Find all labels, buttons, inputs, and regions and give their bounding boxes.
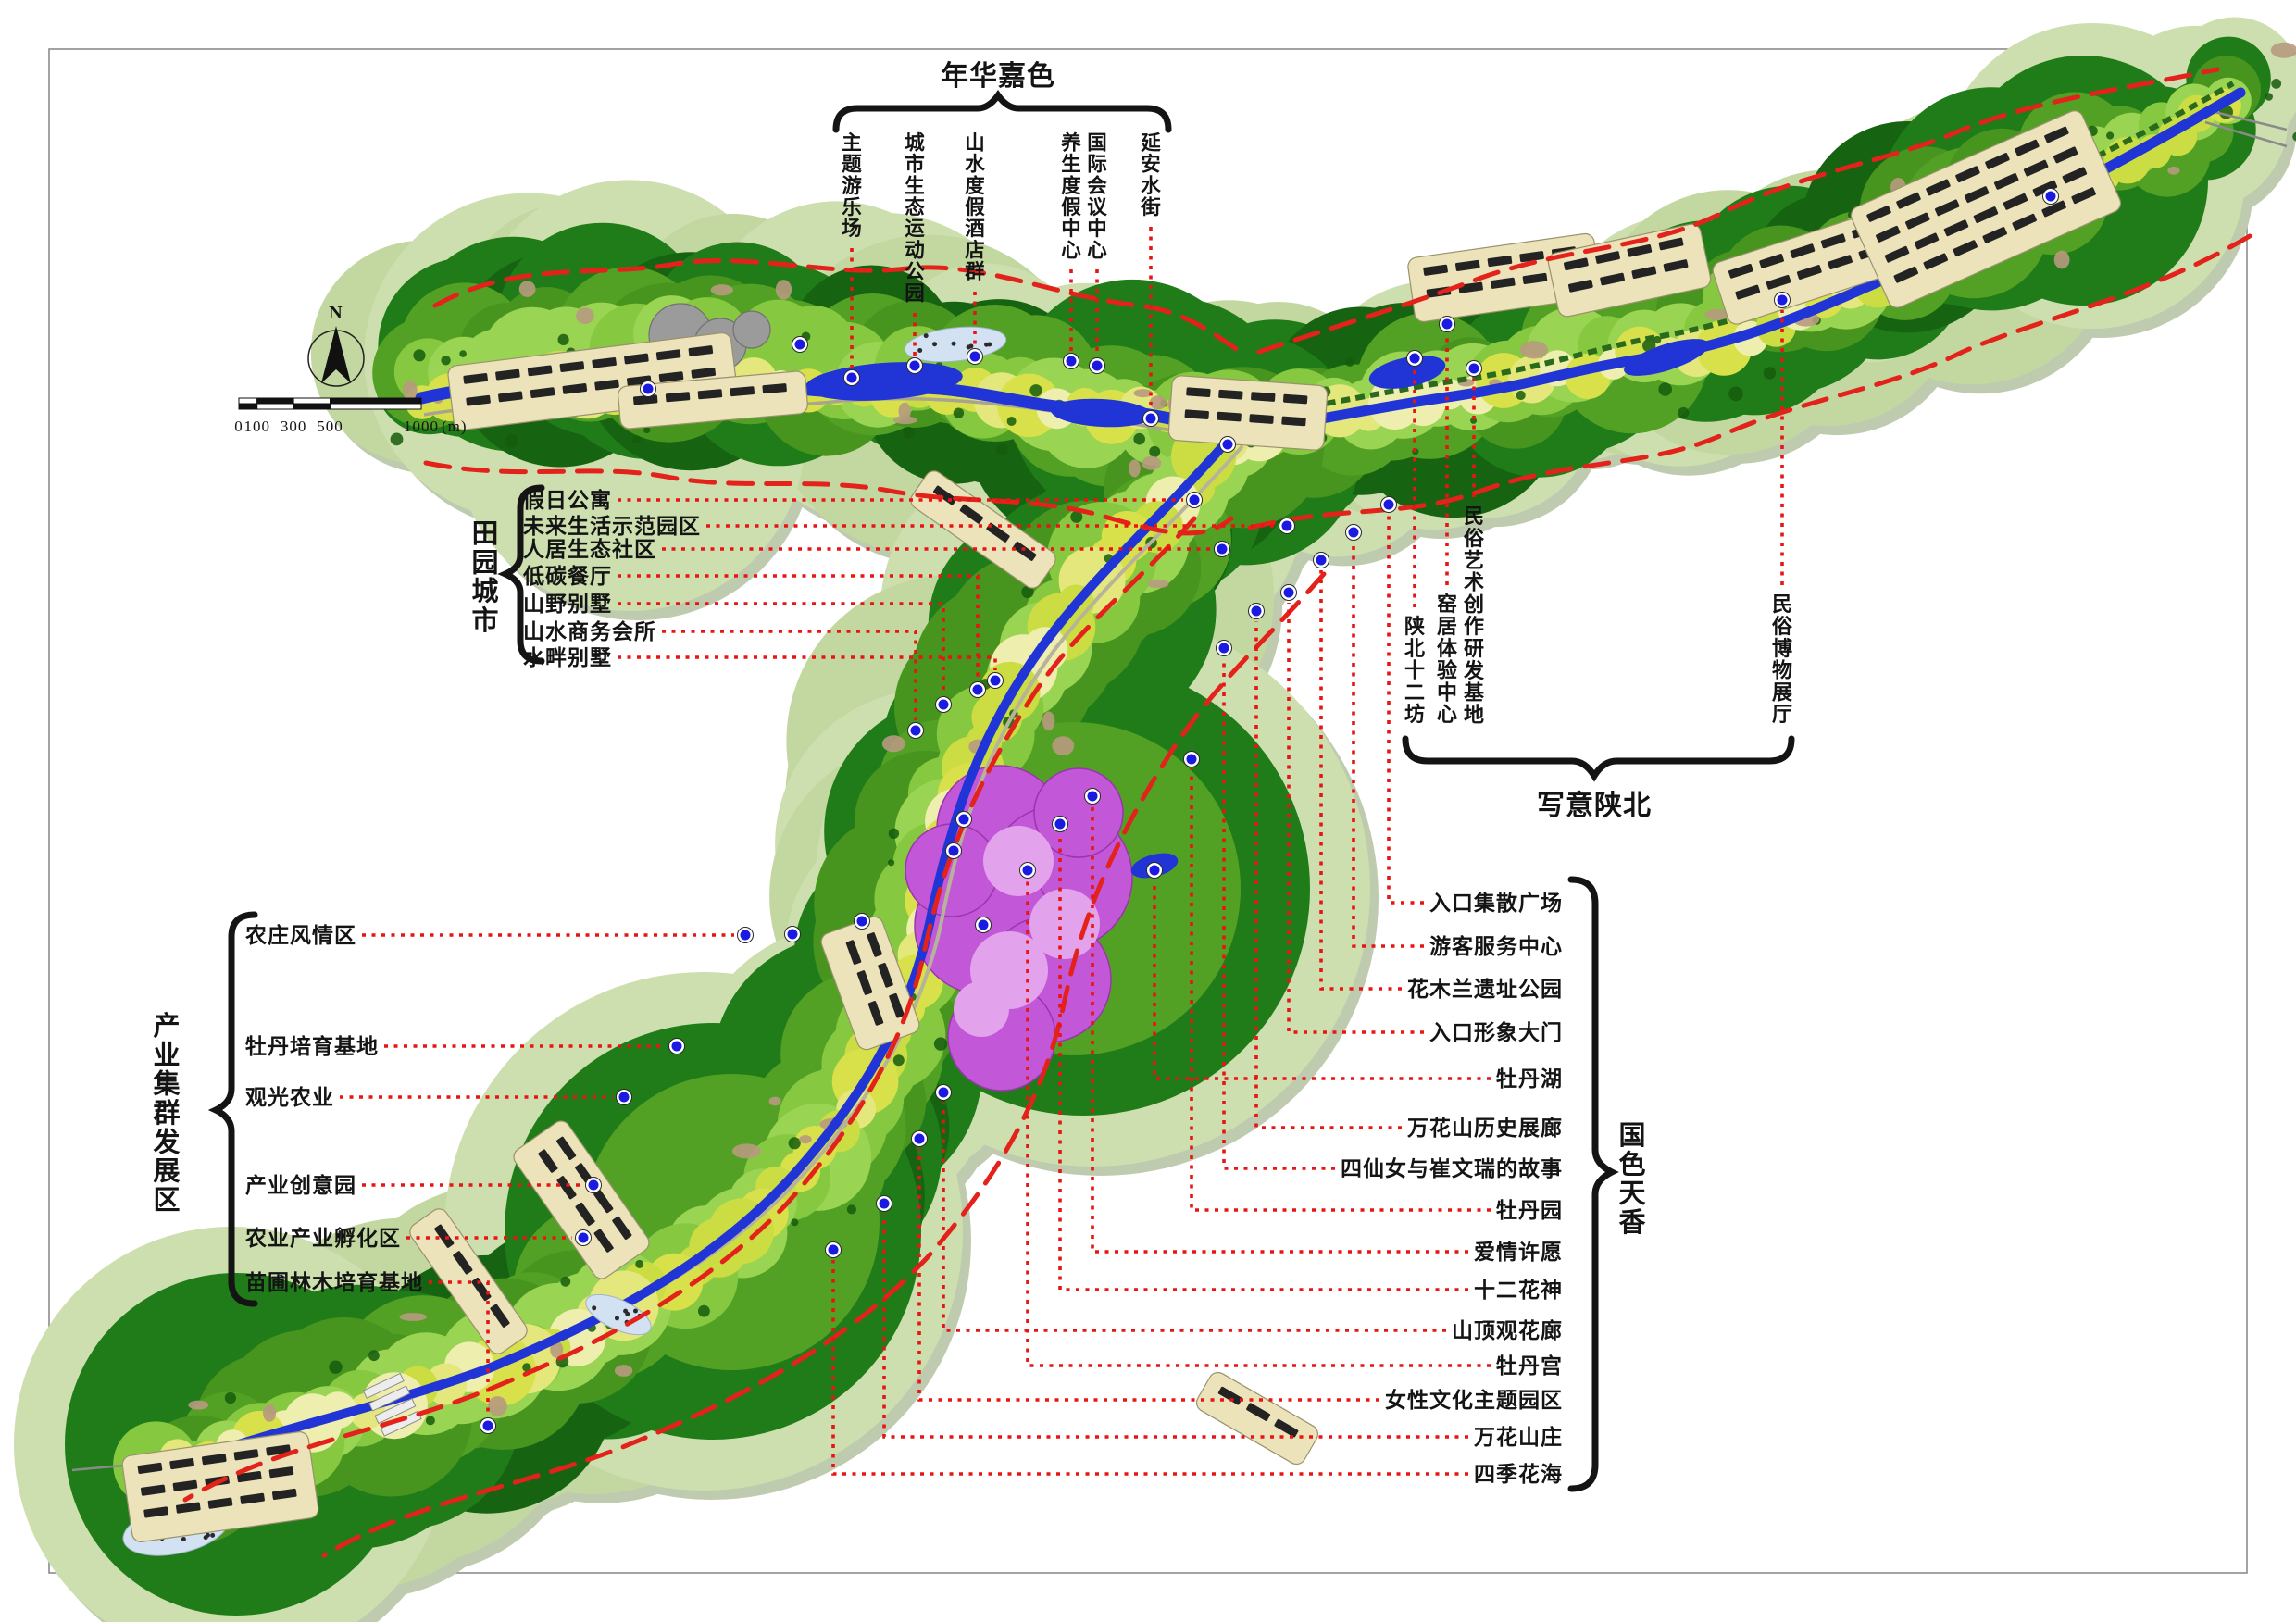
map-label: 山水商务会所	[523, 619, 656, 643]
map-label: 观光农业	[245, 1085, 334, 1109]
poi-marker	[586, 1178, 602, 1193]
map-label: 花木兰遗址公园	[1407, 977, 1563, 1001]
map-label: 农庄风情区	[244, 923, 356, 947]
poi-marker	[1381, 497, 1397, 513]
leader-line	[884, 1214, 1468, 1437]
poi-marker	[1279, 518, 1295, 534]
map-label: 延安水街	[1140, 131, 1161, 218]
map-label: 山顶观花廊	[1452, 1318, 1563, 1342]
poi-marker	[936, 697, 952, 713]
map-label: 万花山历史展廊	[1407, 1116, 1563, 1140]
poi-marker	[1147, 863, 1163, 879]
poi-marker	[1020, 863, 1036, 879]
group-title-chanye: 产业集群发展区	[152, 1011, 181, 1216]
map-label: 十二花神	[1474, 1278, 1563, 1302]
poi-marker	[641, 381, 656, 397]
map-label: 苗圃林木培育基地	[245, 1270, 423, 1294]
map-label: 低碳餐厅	[522, 565, 612, 588]
map-label: 爱情许愿	[1474, 1240, 1563, 1264]
group-title-xieyi: 写意陕北	[1537, 790, 1652, 821]
poi-marker	[976, 917, 992, 933]
poi-marker	[1187, 493, 1203, 508]
poi-marker	[669, 1039, 685, 1054]
map-label: 山野别墅	[523, 593, 612, 616]
group-title-nianhua: 年华嘉色	[941, 61, 1055, 92]
poi-marker	[1085, 789, 1101, 805]
scale-unit: (m)	[442, 418, 468, 435]
scale-tick: 300	[281, 418, 307, 435]
poi-marker	[1053, 817, 1068, 832]
poi-marker	[844, 370, 860, 386]
poi-marker	[1064, 354, 1079, 369]
poi-marker	[877, 1196, 892, 1212]
map-label: 养生度假中心	[1061, 131, 1081, 261]
poi-marker	[946, 843, 962, 859]
brace-xieyi	[1405, 739, 1791, 776]
poi-marker	[967, 349, 983, 365]
map-label: 女性文化主题园区	[1385, 1388, 1563, 1412]
map-label: 牡丹宫	[1496, 1354, 1563, 1378]
poi-marker	[826, 1242, 842, 1258]
map-label: 人居生态社区	[523, 537, 656, 561]
poi-marker	[1143, 411, 1159, 427]
master-plan-map: 主题游乐场城市生态运动公园山水度假酒店群养生度假中心国际会议中心延安水街年华嘉色…	[0, 0, 2296, 1622]
poi-marker	[1215, 542, 1230, 557]
poi-marker	[617, 1090, 632, 1105]
scale-bar	[239, 398, 421, 409]
poi-marker	[1314, 553, 1329, 568]
poi-marker	[1090, 358, 1105, 374]
poi-marker	[855, 914, 870, 930]
map-label: 国际会议中心	[1087, 131, 1107, 261]
scale-tick: 100	[243, 418, 270, 435]
scale-tick: 1000	[404, 418, 439, 435]
poi-marker	[1407, 351, 1423, 367]
poi-marker	[912, 1131, 928, 1147]
poi-marker	[785, 927, 801, 942]
map-label: 陕北十二坊	[1404, 615, 1425, 726]
map-label: 主题游乐场	[842, 131, 862, 240]
map-label: 牡丹培育基地	[245, 1034, 379, 1058]
map-label: 城市生态运动公园	[905, 131, 925, 304]
map-label: 未来生活示范园区	[523, 515, 701, 538]
map-label: 万花山庄	[1474, 1425, 1563, 1449]
poi-marker	[2043, 189, 2059, 205]
leader-line	[919, 1149, 1379, 1400]
map-label: 四季花海	[1474, 1462, 1563, 1486]
map-label: 民俗艺术创作研发基地	[1463, 505, 1485, 726]
poi-marker	[1440, 317, 1455, 332]
poi-marker	[936, 1085, 952, 1101]
map-label: 农业产业孵化区	[244, 1226, 401, 1250]
poi-marker	[1281, 585, 1297, 601]
group-title-guose: 国色天香	[1618, 1121, 1646, 1238]
poi-marker	[1249, 604, 1265, 619]
brace-nianhua	[836, 95, 1168, 130]
poi-marker	[576, 1230, 592, 1246]
map-label: 牡丹园	[1496, 1199, 1563, 1222]
poi-marker	[908, 723, 924, 739]
poi-marker	[907, 358, 923, 374]
poi-marker	[1775, 293, 1791, 308]
map-label: 山水度假酒店群	[965, 131, 985, 282]
map-label: 产业创意园	[245, 1173, 356, 1197]
scale-tick: 0	[234, 418, 243, 435]
map-label: 四仙女与崔文瑞的故事	[1341, 1156, 1563, 1180]
map-label: 牡丹湖	[1496, 1067, 1563, 1091]
north-label: N	[329, 303, 343, 323]
map-label: 入口形象大门	[1429, 1020, 1563, 1044]
map-label: 游客服务中心	[1429, 934, 1563, 958]
map-label: 窑居体验中心	[1437, 593, 1458, 726]
poi-marker	[1466, 361, 1482, 377]
poi-marker	[738, 928, 754, 943]
brace-guose	[1571, 880, 1612, 1489]
poi-marker	[1217, 641, 1232, 656]
building-cluster	[1168, 375, 1328, 451]
poi-marker	[1220, 437, 1236, 453]
poi-marker	[1184, 752, 1200, 767]
poi-marker	[988, 673, 1004, 689]
poi-marker	[956, 812, 972, 828]
building-cluster	[1193, 1369, 1321, 1467]
poi-marker	[480, 1418, 496, 1434]
poi-marker	[792, 337, 808, 353]
poi-marker	[1346, 525, 1362, 541]
scale-tick: 500	[317, 418, 343, 435]
map-label: 民俗博物展厅	[1771, 593, 1793, 726]
map-label: 入口集散广场	[1429, 891, 1563, 915]
group-title-tianyuan: 田园城市	[471, 519, 498, 636]
poi-marker	[970, 682, 986, 698]
